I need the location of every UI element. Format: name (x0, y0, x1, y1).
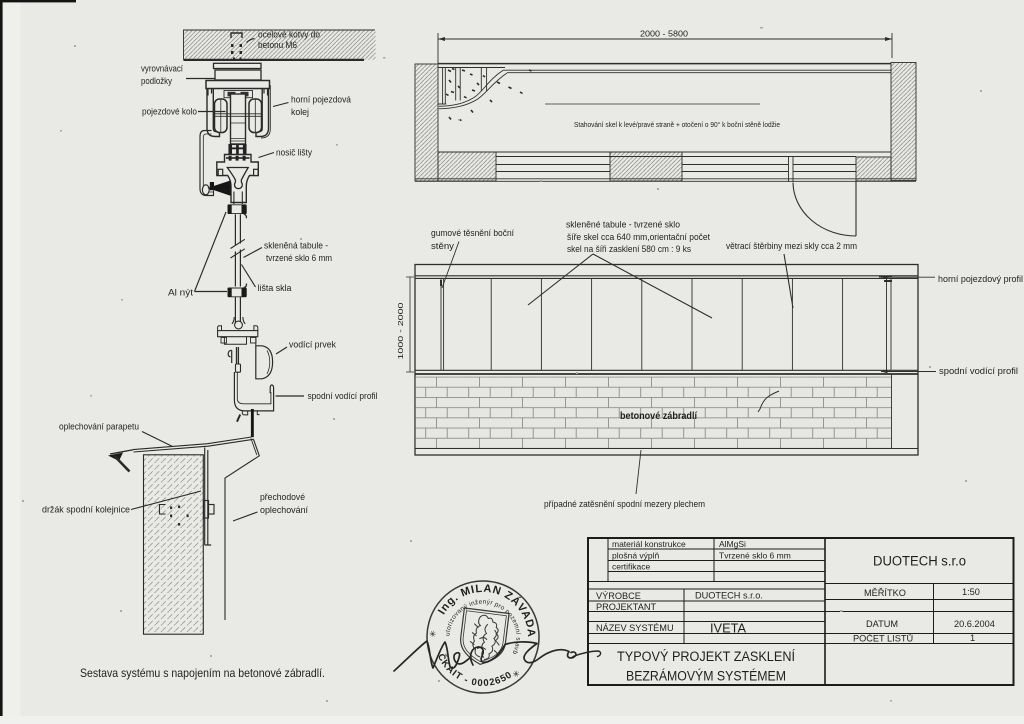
svg-text:gumové těsnění boční: gumové těsnění boční (431, 228, 514, 239)
svg-text:plošná výplň: plošná výplň (612, 551, 660, 561)
svg-text:Stahování skel k levé/pravé st: Stahování skel k levé/pravé straně + oto… (574, 120, 780, 129)
svg-text:spodní vodící profil: spodní vodící profil (308, 391, 378, 402)
svg-text:PROJEKTANT: PROJEKTANT (596, 602, 656, 612)
svg-text:horní pojezdový profil: horní pojezdový profil (938, 274, 1023, 285)
svg-text:ocelové kotvy do: ocelové kotvy do (258, 30, 320, 41)
svg-text:případné zatěsnění spodní meze: případné zatěsnění spodní mezery plechem (544, 499, 705, 510)
svg-text:spodní vodící profil: spodní vodící profil (939, 366, 1018, 377)
svg-text:IVETA: IVETA (710, 621, 746, 636)
svg-text:DUOTECH s.r.o.: DUOTECH s.r.o. (695, 591, 763, 601)
svg-text:horní pojezdová: horní pojezdová (291, 95, 352, 106)
svg-text:větrací štěrbiny mezi skly cca: větrací štěrbiny mezi skly cca 2 mm (726, 241, 857, 252)
svg-text:VÝROBCE: VÝROBCE (596, 591, 641, 601)
svg-text:vyrovnávací: vyrovnávací (141, 64, 183, 75)
svg-text:držák spodní kolejnice: držák spodní kolejnice (42, 505, 130, 516)
svg-text:skleněná tabule -: skleněná tabule - (264, 241, 328, 252)
svg-text:lišta skla: lišta skla (258, 283, 293, 294)
svg-text:šíře skel cca 640 mm,orientačn: šíře skel cca 640 mm,orientační počet (567, 232, 710, 243)
svg-text:1:50: 1:50 (962, 587, 980, 597)
svg-text:Sestava systému s napojením na: Sestava systému s napojením na betonové … (80, 666, 325, 680)
svg-text:přechodové: přechodové (260, 492, 305, 503)
svg-text:MĚŘÍTKO: MĚŘÍTKO (864, 588, 906, 598)
svg-text:betonové zábradlí: betonové zábradlí (620, 410, 698, 422)
svg-text:20.6.2004: 20.6.2004 (954, 619, 995, 629)
svg-text:materiál konstrukce: materiál konstrukce (612, 539, 686, 549)
svg-text:1: 1 (970, 633, 975, 643)
svg-text:2000 - 5800: 2000 - 5800 (640, 29, 688, 39)
svg-text:Tvrzené sklo 6 mm: Tvrzené sklo 6 mm (719, 551, 791, 561)
svg-text:betonu M6: betonu M6 (258, 40, 297, 51)
svg-text:oplechování parapetu: oplechování parapetu (59, 422, 139, 433)
svg-text:TYPOVÝ PROJEKT ZASKLENÍ: TYPOVÝ PROJEKT ZASKLENÍ (617, 649, 795, 664)
svg-text:kolej: kolej (291, 107, 309, 118)
svg-text:BEZRÁMOVÝM SYSTÉMEM: BEZRÁMOVÝM SYSTÉMEM (626, 669, 786, 684)
svg-text:vodící prvek: vodící prvek (289, 340, 336, 351)
svg-text:nosič lišty: nosič lišty (276, 148, 312, 159)
svg-text:skel na šíři zasklení 580 cm :: skel na šíři zasklení 580 cm : 9 ks (567, 244, 691, 255)
svg-text:oplechování: oplechování (260, 505, 308, 516)
svg-text:NÁZEV SYSTÉMU: NÁZEV SYSTÉMU (596, 623, 674, 633)
svg-text:AlMgSi: AlMgSi (719, 539, 746, 549)
svg-text:1000 - 2000: 1000 - 2000 (396, 303, 405, 360)
svg-text:Al nýt: Al nýt (168, 288, 193, 299)
svg-text:certifikace: certifikace (612, 562, 651, 572)
svg-text:tvrzené sklo 6 mm: tvrzené sklo 6 mm (266, 253, 332, 264)
svg-text:podložky: podložky (141, 76, 172, 87)
svg-text:DUOTECH s.r.o: DUOTECH s.r.o (873, 554, 966, 569)
svg-text:stěny: stěny (431, 241, 454, 252)
svg-text:skleněné tabule - tvrzené skl: skleněné tabule - tvrzené sklo (566, 220, 680, 231)
svg-text:POČET LISTŮ: POČET LISTŮ (853, 633, 913, 644)
svg-text:DATUM: DATUM (866, 619, 898, 629)
svg-text:pojezdové kolo: pojezdové kolo (142, 107, 197, 118)
